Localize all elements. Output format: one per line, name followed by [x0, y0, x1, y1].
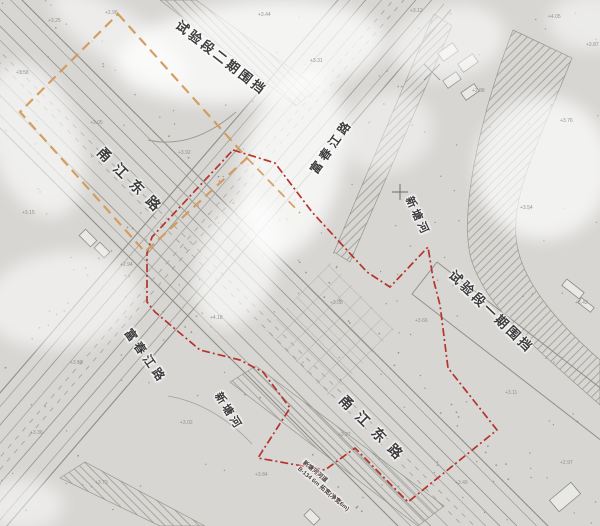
site-plan-map: 试验段二期围挡试验段一期围挡甬江东路甬江东路富春江路富春江路新塘河新塘河新塘河河… [0, 0, 600, 526]
map-linework-canvas [0, 0, 600, 526]
